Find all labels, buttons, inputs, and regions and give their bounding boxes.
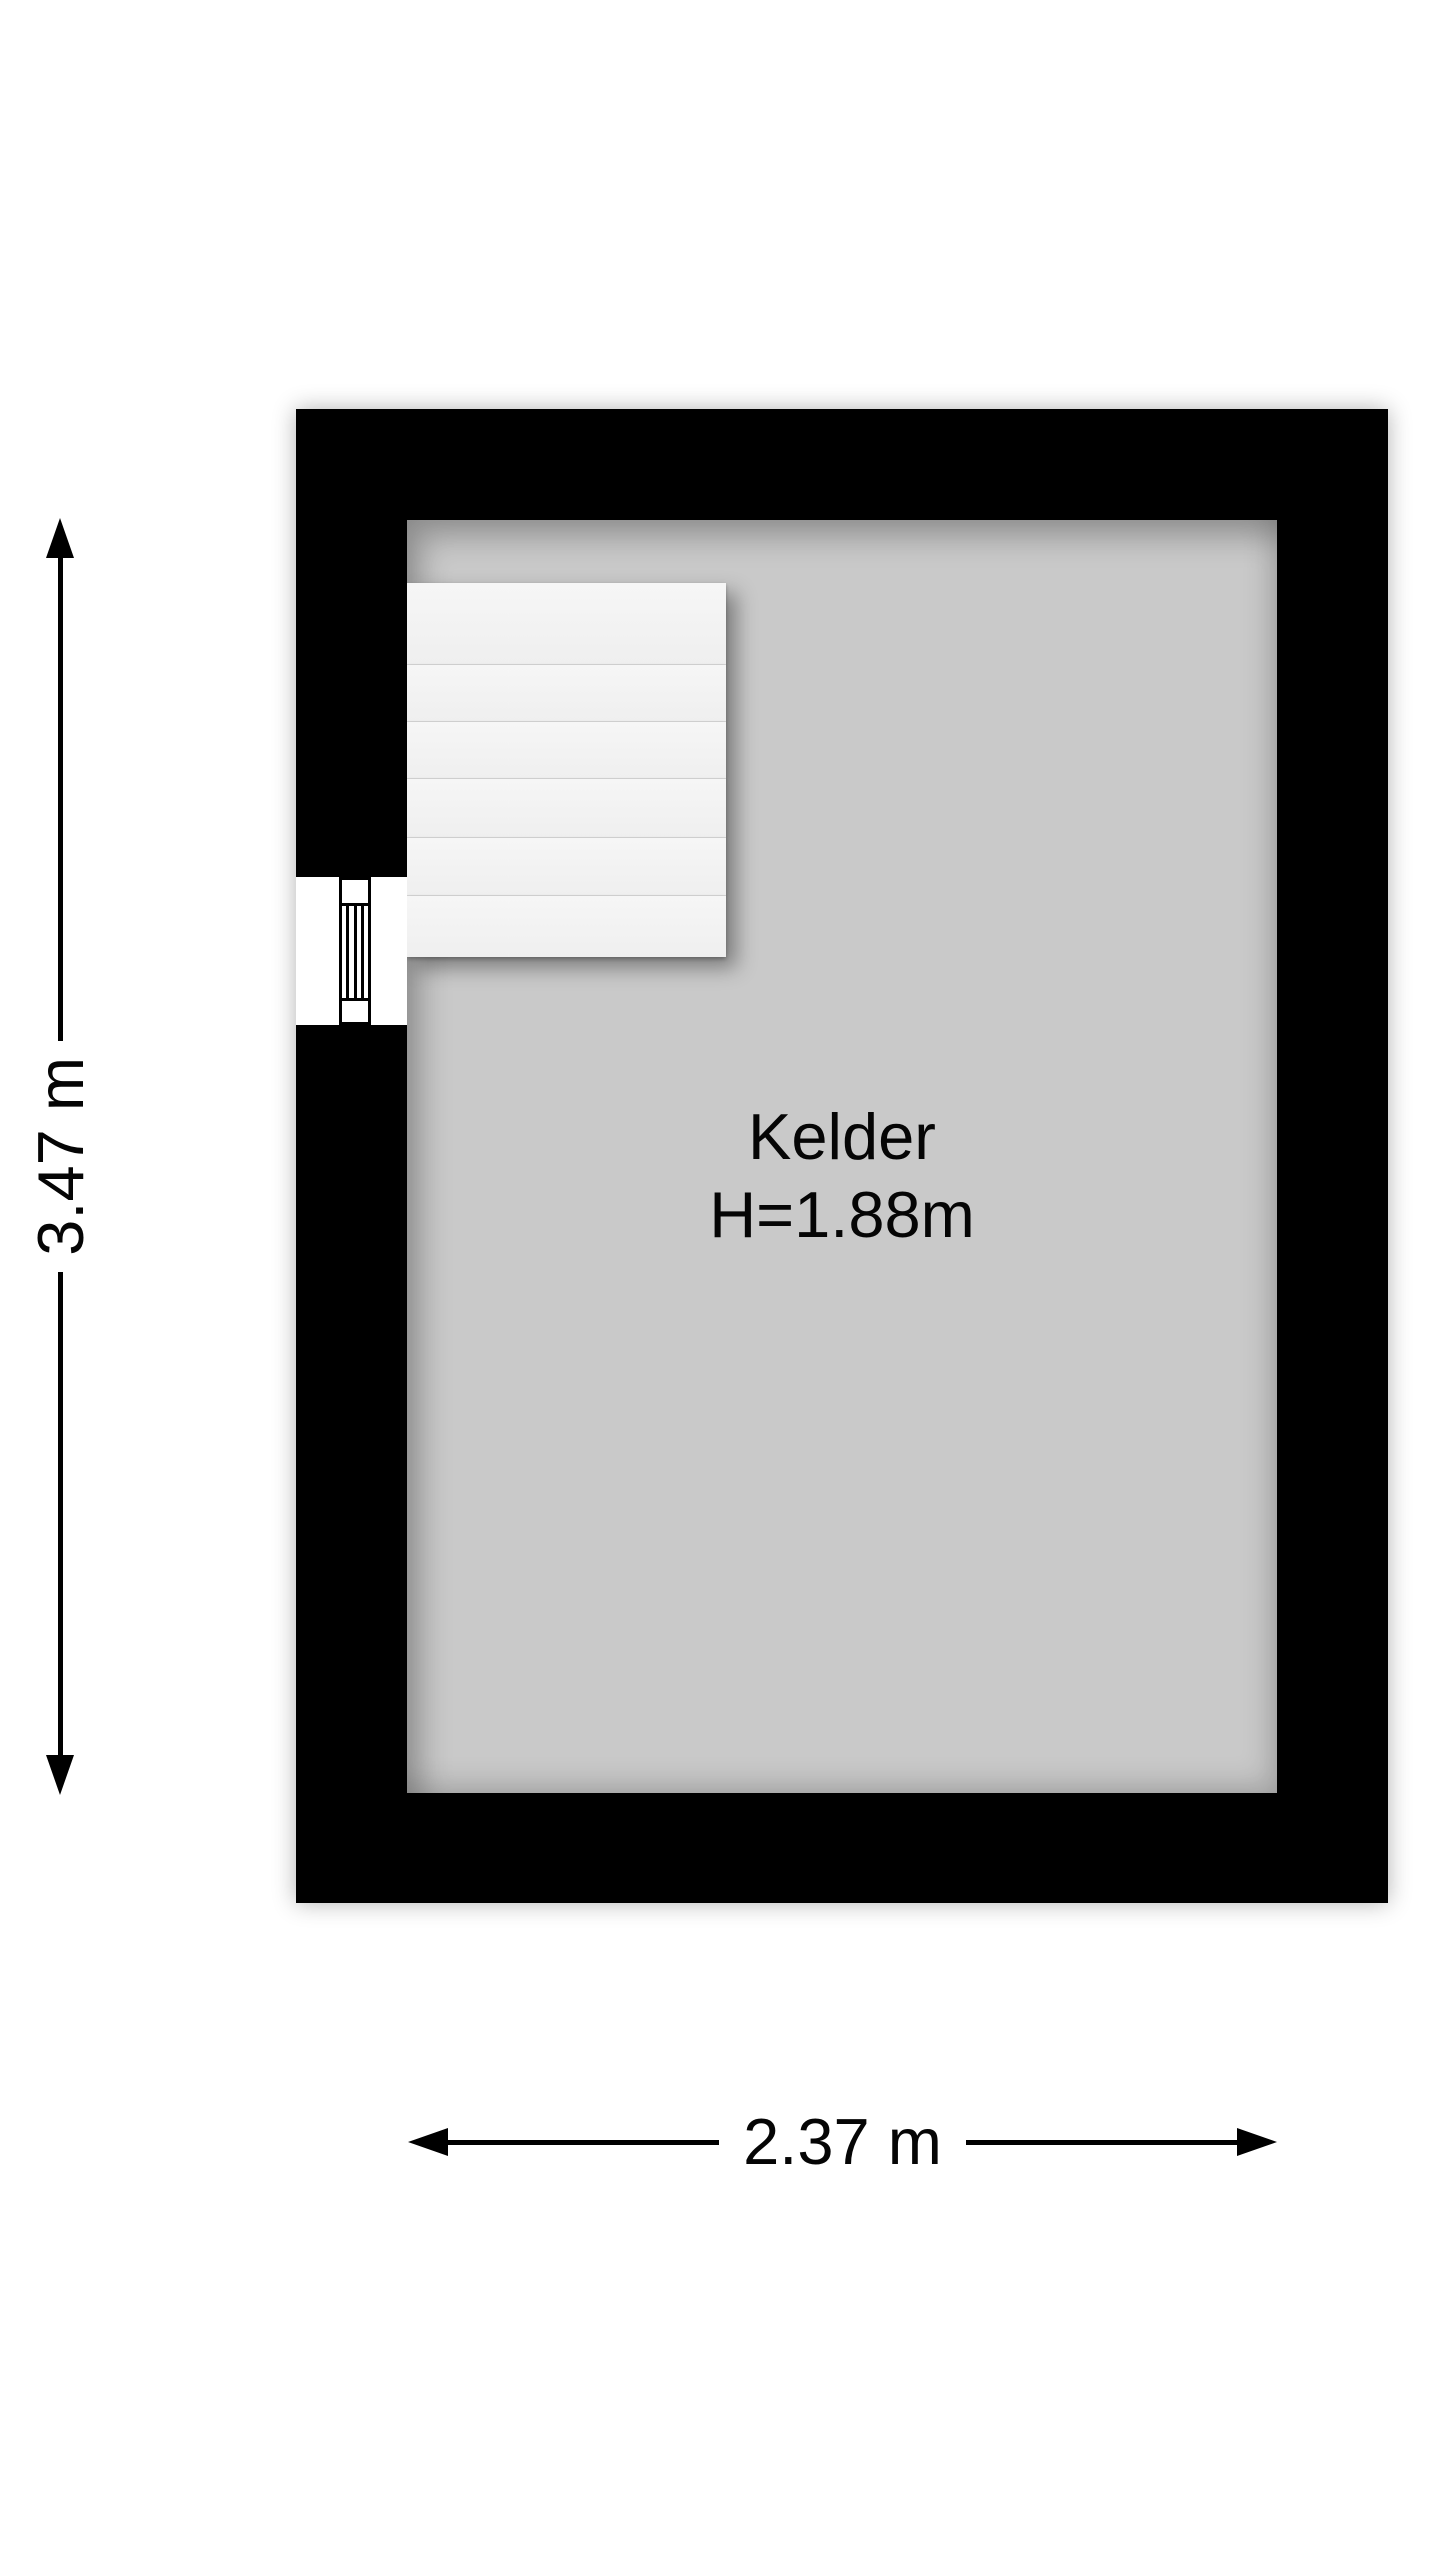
window-icon [339, 877, 371, 1025]
window-mullion [346, 906, 349, 998]
wall-opening [296, 877, 407, 1025]
window-glazing [342, 906, 368, 998]
floorplan-page: Kelder H=1.88m 3.47 m 2.37 m [0, 0, 1440, 2560]
dimension-line-segment [58, 558, 63, 1041]
window-frame-top [342, 880, 368, 906]
horizontal-dimension-label: 2.37 m [719, 2113, 966, 2171]
stairs [407, 583, 726, 957]
stair-tread [407, 665, 726, 722]
window-mullion [361, 906, 364, 998]
horizontal-dimension: 2.37 m [408, 2113, 1277, 2171]
window-mullion [354, 906, 357, 998]
stair-tread [407, 779, 726, 837]
room-height-label: H=1.88m [407, 1176, 1277, 1254]
stair-tread [407, 838, 726, 896]
arrow-down-icon [46, 1755, 74, 1795]
vertical-dimension: 3.47 m [25, 518, 95, 1795]
dimension-line-segment [966, 2140, 1237, 2145]
stair-tread [407, 583, 726, 665]
arrow-left-icon [408, 2128, 448, 2156]
room-label-block: Kelder H=1.88m [407, 1098, 1277, 1254]
room-name-label: Kelder [407, 1098, 1277, 1176]
dimension-line-segment [58, 1272, 63, 1755]
stair-tread [407, 896, 726, 957]
window-frame-bottom [342, 998, 368, 1022]
arrow-up-icon [46, 518, 74, 558]
stair-tread [407, 722, 726, 779]
dimension-line-segment [448, 2140, 719, 2145]
vertical-dimension-label: 3.47 m [28, 1041, 93, 1272]
arrow-right-icon [1237, 2128, 1277, 2156]
